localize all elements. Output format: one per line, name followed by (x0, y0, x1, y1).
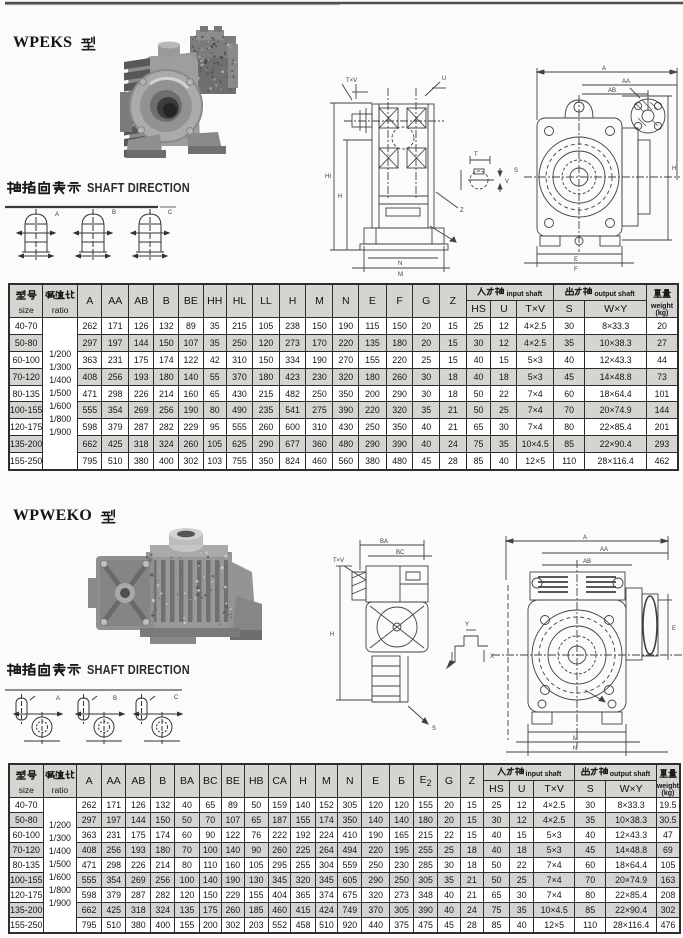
svg-text:E: E (574, 257, 578, 263)
svg-text:AA: AA (622, 79, 630, 85)
svg-text:H: H (330, 632, 334, 638)
svg-text:T×V: T×V (333, 558, 344, 564)
svg-text:AB: AB (583, 559, 591, 565)
svg-text:HI: HI (325, 174, 331, 180)
svg-text:F: F (574, 267, 578, 273)
svg-text:U: U (442, 76, 446, 82)
svg-text:V: V (505, 179, 509, 185)
svg-text:N: N (573, 746, 577, 752)
svg-text:AB: AB (608, 88, 616, 94)
svg-text:A: A (55, 212, 59, 218)
svg-text:E: E (672, 626, 676, 632)
svg-text:S: S (432, 726, 436, 732)
svg-text:A: A (56, 696, 60, 702)
svg-text:C: C (168, 210, 173, 216)
svg-text:AA: AA (600, 547, 608, 553)
svg-text:S: S (514, 168, 518, 174)
svg-text:B: B (113, 696, 117, 702)
svg-text:A: A (602, 66, 606, 72)
svg-text:N: N (398, 261, 402, 267)
svg-text:M: M (573, 736, 578, 742)
svg-text:C: C (174, 695, 179, 701)
svg-text:T: T (474, 152, 478, 158)
svg-text:Z: Z (460, 208, 464, 214)
svg-text:T×V: T×V (346, 78, 357, 84)
svg-text:H: H (672, 166, 676, 172)
svg-text:Y: Y (465, 622, 469, 628)
svg-text:A: A (583, 535, 587, 541)
svg-text:B: B (112, 210, 116, 216)
svg-text:M: M (398, 272, 403, 278)
svg-text:BC: BC (396, 550, 405, 556)
svg-text:BA: BA (380, 539, 388, 545)
svg-text:H: H (338, 194, 342, 200)
